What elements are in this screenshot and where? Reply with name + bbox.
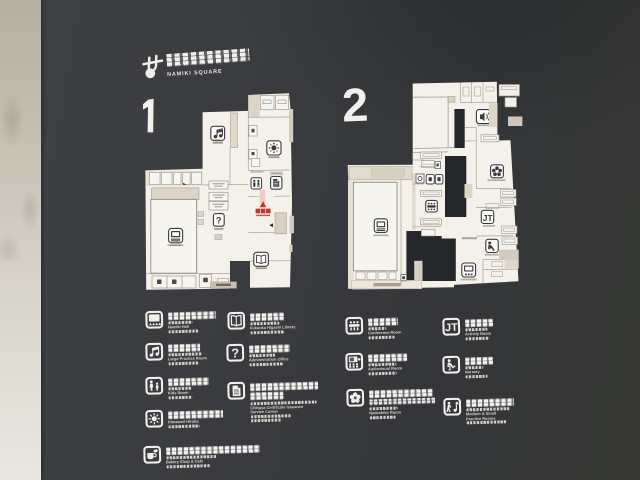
svg-text:?: ?: [231, 346, 239, 361]
svg-text:JT: JT: [445, 322, 458, 334]
svg-text:JT: JT: [483, 213, 494, 223]
svg-text:?: ?: [216, 215, 222, 225]
